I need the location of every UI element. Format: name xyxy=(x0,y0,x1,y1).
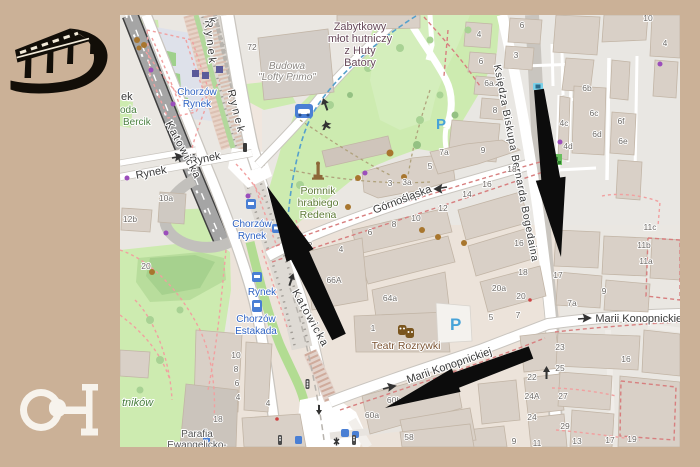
svg-text:18: 18 xyxy=(507,164,517,174)
svg-text:4: 4 xyxy=(477,29,482,39)
svg-text:10a: 10a xyxy=(159,193,173,203)
svg-text:Pomnik: Pomnik xyxy=(300,185,336,197)
svg-text:11: 11 xyxy=(533,438,542,447)
svg-text:6: 6 xyxy=(235,378,240,388)
svg-text:66A: 66A xyxy=(326,275,341,285)
svg-text:7a: 7a xyxy=(439,147,449,157)
svg-text:Marii Konopnickiej: Marii Konopnickiej xyxy=(595,313,680,325)
svg-text:20: 20 xyxy=(141,261,151,271)
svg-text:9: 9 xyxy=(602,286,607,296)
svg-text:"Lofty Primo": "Lofty Primo" xyxy=(258,72,316,83)
svg-text:19: 19 xyxy=(627,434,637,444)
svg-text:młot hutniczy: młot hutniczy xyxy=(328,33,393,45)
svg-text:5: 5 xyxy=(428,161,433,171)
svg-text:3: 3 xyxy=(388,178,393,188)
svg-text:3: 3 xyxy=(514,50,519,60)
svg-text:29: 29 xyxy=(560,421,570,431)
svg-text:Zabytkowy: Zabytkowy xyxy=(334,21,387,33)
svg-text:12b: 12b xyxy=(123,214,137,224)
svg-text:P: P xyxy=(450,315,461,334)
svg-text:Teatr Rozrywki: Teatr Rozrywki xyxy=(372,340,441,352)
svg-text:16: 16 xyxy=(514,238,524,248)
svg-text:18: 18 xyxy=(518,267,528,277)
svg-text:Chorzów: Chorzów xyxy=(236,314,276,325)
svg-text:Ewangelicko-: Ewangelicko- xyxy=(167,440,226,447)
svg-text:64a: 64a xyxy=(383,293,397,303)
svg-text:4d: 4d xyxy=(563,141,573,151)
svg-text:60a: 60a xyxy=(365,410,379,420)
svg-text:23: 23 xyxy=(555,342,565,352)
svg-text:10: 10 xyxy=(231,350,241,360)
svg-text:1: 1 xyxy=(371,323,376,333)
svg-text:3a: 3a xyxy=(402,177,412,187)
svg-text:Chorzów: Chorzów xyxy=(177,87,217,98)
svg-text:16: 16 xyxy=(621,354,631,364)
svg-text:8: 8 xyxy=(392,219,397,229)
svg-text:4: 4 xyxy=(663,38,668,48)
svg-text:10: 10 xyxy=(643,15,653,23)
svg-text:27: 27 xyxy=(558,391,568,401)
svg-text:6e: 6e xyxy=(618,136,628,146)
svg-text:6b: 6b xyxy=(582,83,592,93)
svg-text:6: 6 xyxy=(479,56,484,66)
svg-text:11a: 11a xyxy=(639,256,653,266)
svg-text:7: 7 xyxy=(516,310,521,320)
svg-text:6: 6 xyxy=(368,227,373,237)
svg-text:Chorzów: Chorzów xyxy=(232,219,272,230)
svg-text:24A: 24A xyxy=(524,391,539,401)
svg-text:P: P xyxy=(436,116,446,133)
svg-text:17: 17 xyxy=(605,435,615,445)
svg-text:9: 9 xyxy=(512,436,517,446)
svg-text:14: 14 xyxy=(462,189,472,199)
svg-text:Batory: Batory xyxy=(344,57,376,69)
svg-text:4: 4 xyxy=(339,244,344,254)
svg-text:tników: tników xyxy=(122,397,154,409)
svg-text:9: 9 xyxy=(481,145,486,155)
svg-text:hrabiego: hrabiego xyxy=(298,197,339,209)
svg-text:16: 16 xyxy=(482,179,492,189)
svg-text:22: 22 xyxy=(527,372,537,382)
svg-text:Redena: Redena xyxy=(300,209,337,221)
svg-text:20: 20 xyxy=(516,291,526,301)
svg-text:oda: oda xyxy=(120,105,137,116)
svg-text:Rynek: Rynek xyxy=(248,287,277,298)
svg-text:10: 10 xyxy=(411,213,421,223)
svg-text:24: 24 xyxy=(527,412,537,422)
svg-text:25: 25 xyxy=(555,363,565,373)
svg-text:6: 6 xyxy=(520,20,525,30)
svg-text:Budowa: Budowa xyxy=(269,61,306,72)
svg-text:11c: 11c xyxy=(643,222,657,232)
svg-text:6d: 6d xyxy=(592,129,602,139)
svg-text:6f: 6f xyxy=(617,116,625,126)
svg-text:4: 4 xyxy=(266,398,271,408)
svg-text:20a: 20a xyxy=(492,283,506,293)
svg-text:Rynek: Rynek xyxy=(183,99,212,110)
svg-text:11b: 11b xyxy=(637,240,651,250)
svg-text:z Huty: z Huty xyxy=(344,45,376,57)
svg-text:Bercik: Bercik xyxy=(123,117,152,128)
svg-text:17: 17 xyxy=(553,270,563,280)
svg-text:18: 18 xyxy=(213,414,223,424)
svg-text:4: 4 xyxy=(236,392,241,402)
svg-text:6a: 6a xyxy=(484,78,494,88)
svg-text:8: 8 xyxy=(493,105,498,115)
svg-text:7a: 7a xyxy=(567,298,577,308)
svg-text:13: 13 xyxy=(572,436,582,446)
svg-text:5: 5 xyxy=(489,312,494,322)
svg-text:8: 8 xyxy=(234,364,239,374)
svg-text:6c: 6c xyxy=(590,108,600,118)
svg-text:4c: 4c xyxy=(560,118,570,128)
svg-text:58: 58 xyxy=(404,432,414,442)
svg-text:12: 12 xyxy=(438,203,448,213)
svg-text:Estakada: Estakada xyxy=(235,326,277,337)
svg-text:Rynek: Rynek xyxy=(238,231,267,242)
svg-text:72: 72 xyxy=(247,42,257,52)
svg-text:ek: ek xyxy=(121,91,133,103)
svg-text:Parafia: Parafia xyxy=(181,429,213,440)
